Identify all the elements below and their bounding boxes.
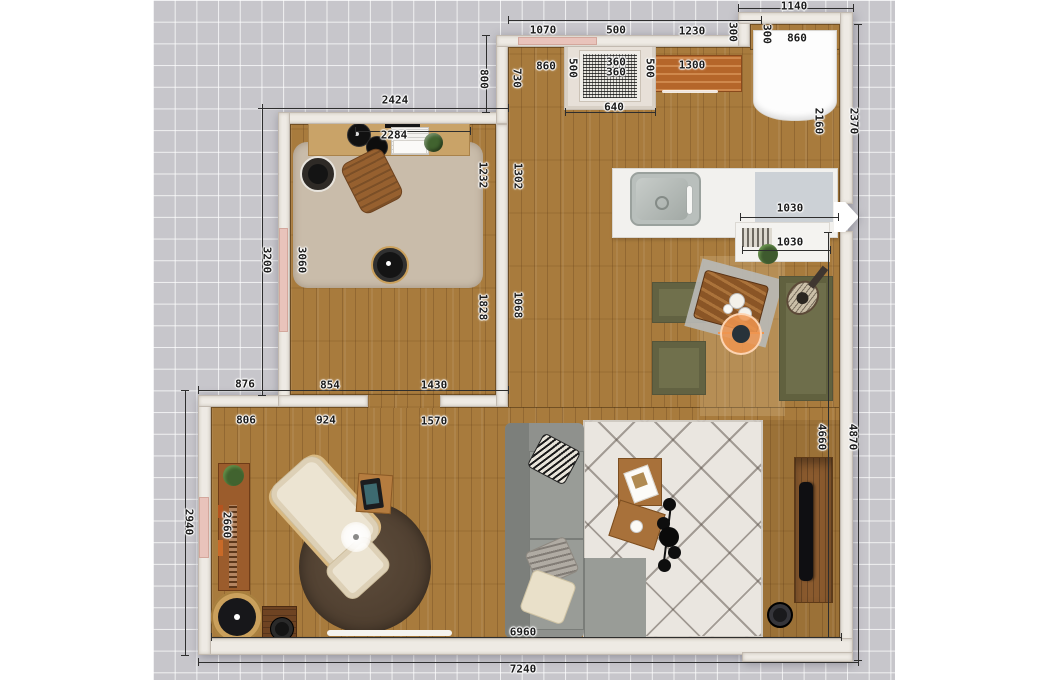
dim-label-1070: 1070 [530, 25, 557, 36]
dim-label-1030: 1030 [777, 203, 804, 214]
dim-label-1068: 1068 [513, 292, 524, 319]
dim-label-1302: 1302 [513, 163, 524, 190]
dim-label-1140: 1140 [781, 1, 808, 12]
dim-label-7240: 7240 [510, 664, 537, 675]
dim-label-6960: 6960 [510, 627, 537, 638]
dim-label-500: 500 [645, 58, 656, 78]
dim-label-500: 500 [606, 25, 626, 36]
dimension-labels-layer: 2424800730107050012303001140300860860500… [0, 0, 1050, 680]
dim-label-854: 854 [320, 380, 340, 391]
dim-label-2660: 2660 [222, 512, 233, 539]
dim-label-1430: 1430 [421, 380, 448, 391]
dim-label-2940: 2940 [184, 509, 195, 536]
dim-label-800: 800 [479, 69, 490, 89]
dim-label-1300: 1300 [679, 60, 706, 71]
dim-label-1828: 1828 [478, 294, 489, 321]
dim-label-3200: 3200 [262, 247, 273, 274]
dim-label-360: 360 [606, 67, 626, 78]
dim-label-1570: 1570 [421, 416, 448, 427]
dim-label-1030: 1030 [777, 237, 804, 248]
dim-label-1230: 1230 [679, 26, 706, 37]
dim-label-876: 876 [235, 379, 255, 390]
dim-label-640: 640 [604, 102, 624, 113]
dim-label-860: 860 [787, 33, 807, 44]
dim-label-4660: 4660 [817, 424, 828, 451]
dim-label-300: 300 [762, 24, 773, 44]
dim-label-2160: 2160 [814, 108, 825, 135]
dim-label-730: 730 [512, 68, 523, 88]
dim-label-1232: 1232 [478, 162, 489, 189]
dim-label-806: 806 [236, 415, 256, 426]
dim-label-300: 300 [728, 22, 739, 42]
dim-label-924: 924 [316, 415, 336, 426]
dim-label-2424: 2424 [382, 95, 409, 106]
dim-label-2370: 2370 [849, 108, 860, 135]
dim-label-3060: 3060 [297, 247, 308, 274]
dim-label-500: 500 [568, 58, 579, 78]
dim-label-4870: 4870 [848, 424, 859, 451]
dim-label-2284: 2284 [381, 130, 408, 141]
floorplan-canvas: { "app": {"view": "floor-plan-top-view"}… [0, 0, 1050, 680]
dim-label-860: 860 [536, 61, 556, 72]
